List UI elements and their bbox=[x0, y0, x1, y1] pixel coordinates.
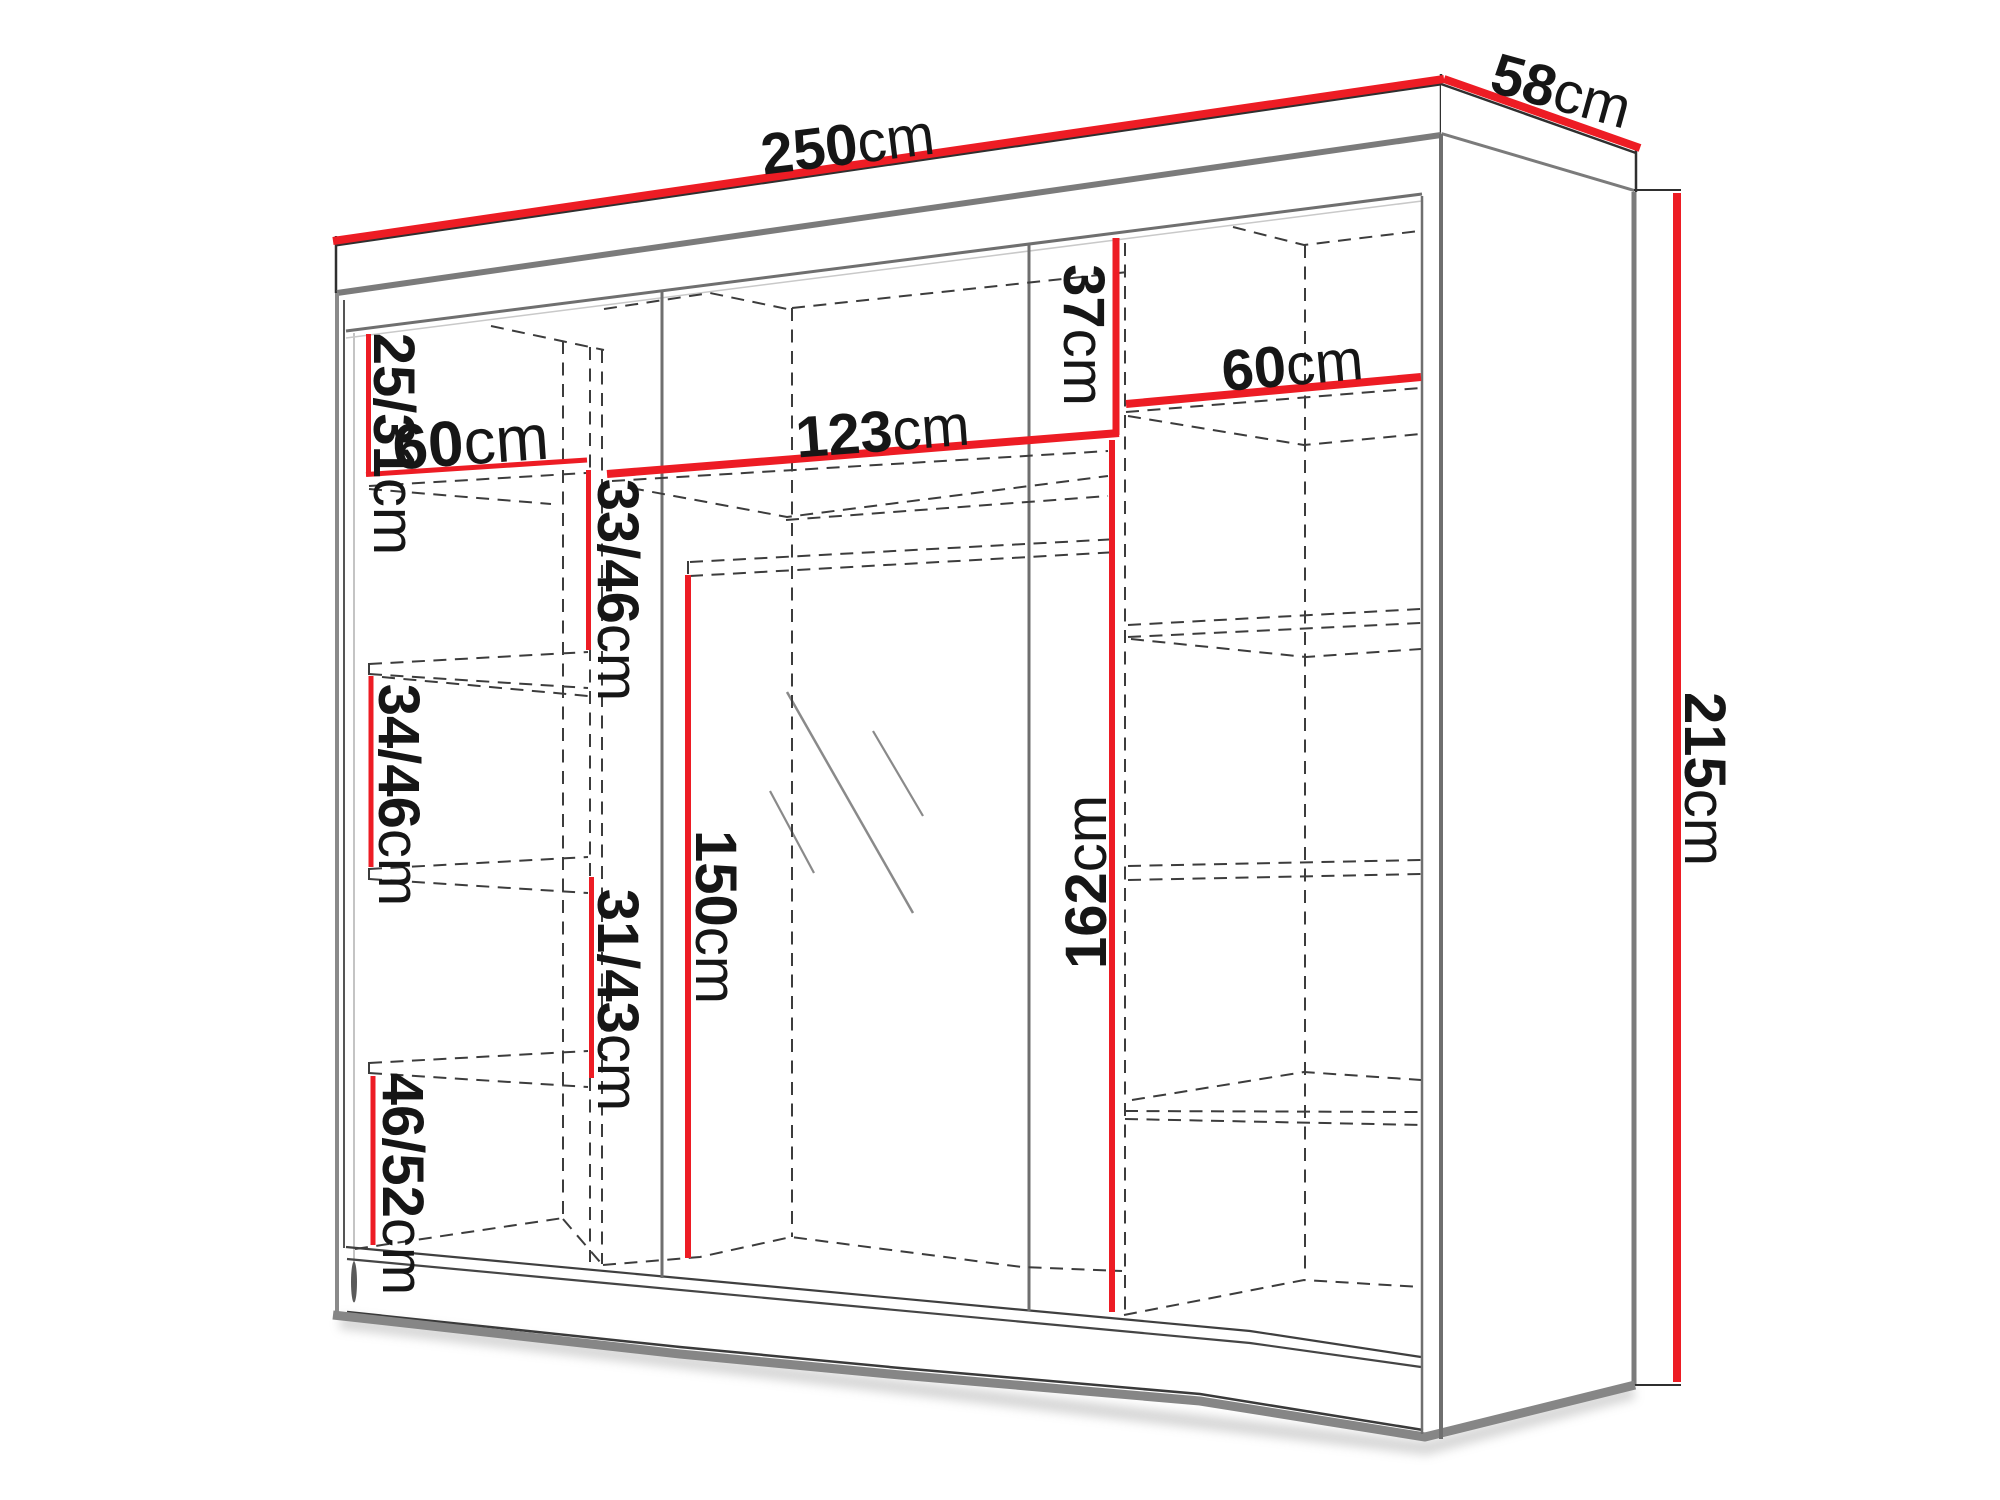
svg-text:60cm: 60cm bbox=[1219, 327, 1366, 404]
svg-text:33/46cm: 33/46cm bbox=[585, 479, 650, 701]
svg-text:60cm: 60cm bbox=[390, 401, 551, 484]
svg-text:46/52cm: 46/52cm bbox=[370, 1073, 435, 1295]
svg-text:34/46cm: 34/46cm bbox=[366, 684, 431, 906]
svg-text:123cm: 123cm bbox=[793, 393, 971, 471]
svg-text:37cm: 37cm bbox=[1051, 264, 1116, 406]
svg-text:31/43cm: 31/43cm bbox=[585, 889, 650, 1111]
svg-text:150cm: 150cm bbox=[683, 830, 748, 1004]
svg-text:162cm: 162cm bbox=[1054, 795, 1119, 969]
svg-text:215cm: 215cm bbox=[1672, 692, 1737, 866]
